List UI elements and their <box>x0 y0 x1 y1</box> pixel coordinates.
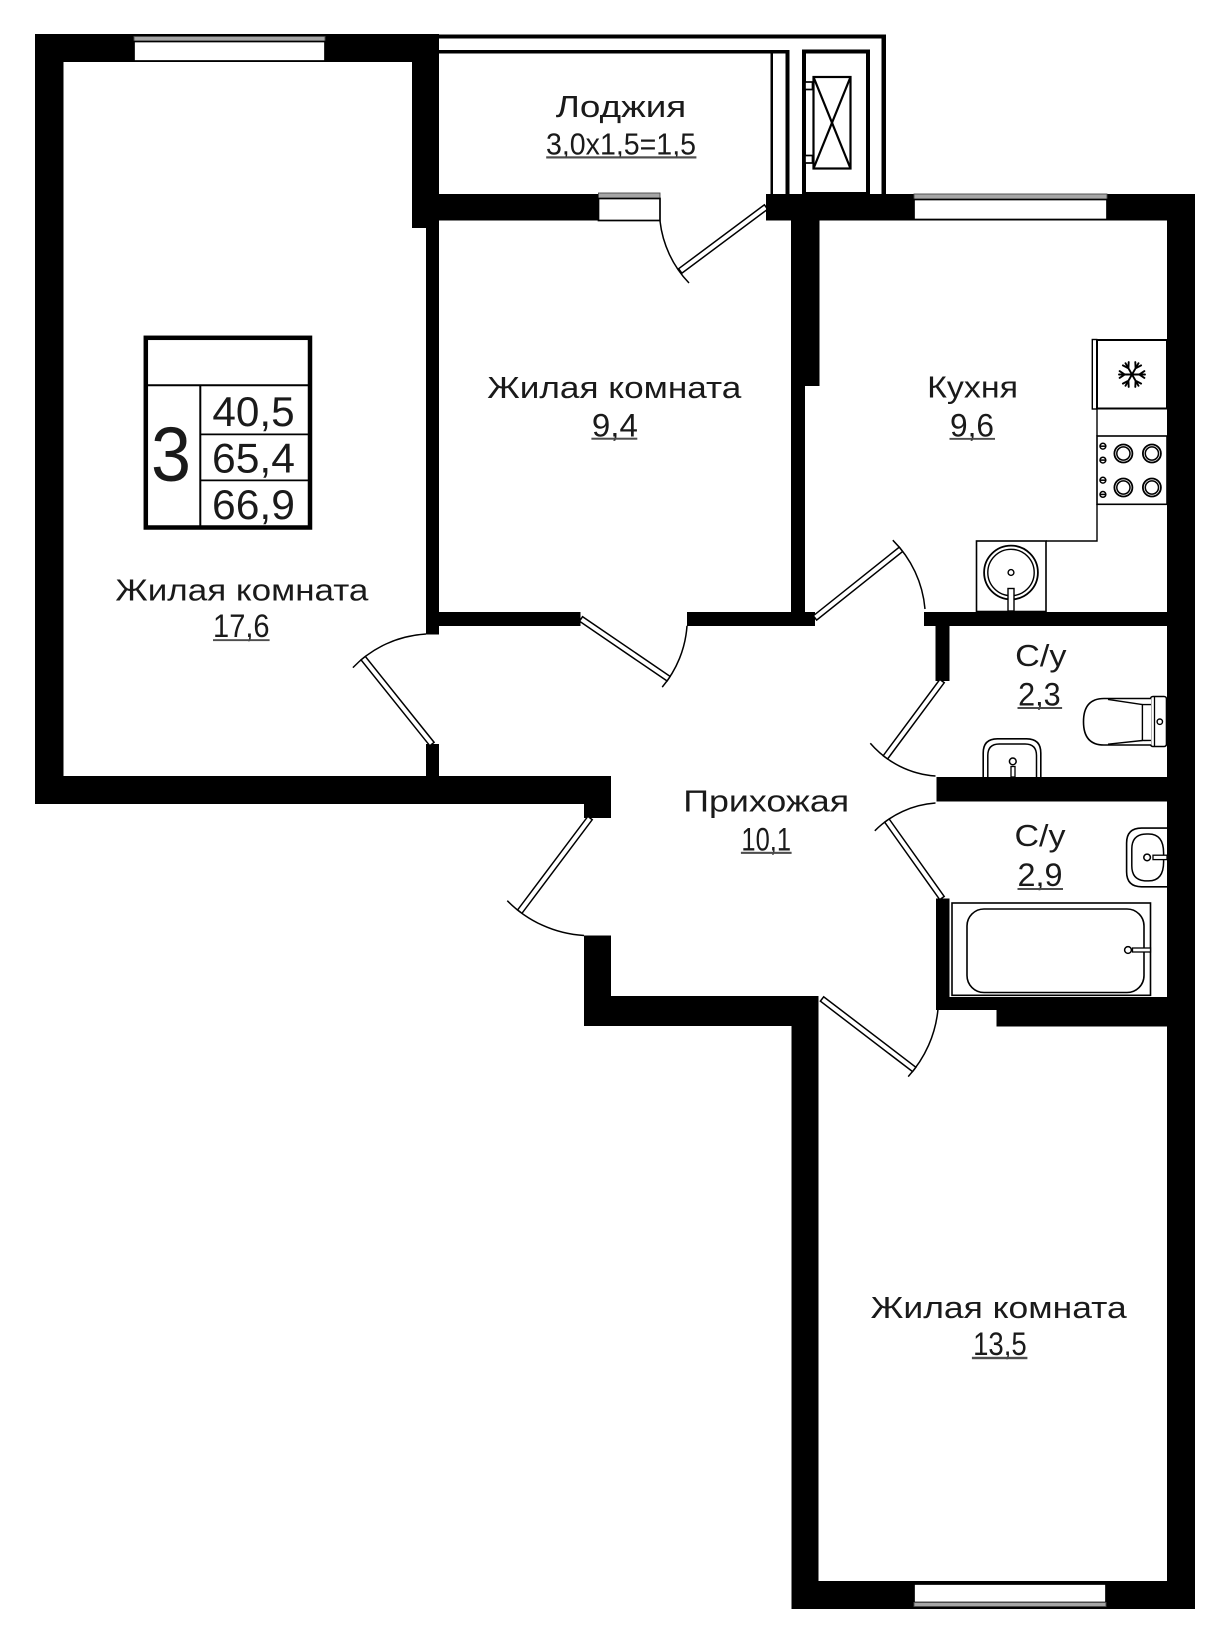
svg-text:Жилая комната: Жилая комната <box>871 1290 1128 1325</box>
svg-text:40,5: 40,5 <box>212 388 294 435</box>
svg-text:13,5: 13,5 <box>973 1326 1027 1362</box>
svg-text:Прихожая: Прихожая <box>683 784 849 819</box>
svg-text:Жилая комната: Жилая комната <box>115 573 369 608</box>
svg-text:2,9: 2,9 <box>1018 857 1063 893</box>
svg-text:3,0х1,5=1,5: 3,0х1,5=1,5 <box>546 127 696 162</box>
svg-text:66,9: 66,9 <box>212 481 295 528</box>
svg-text:Кухня: Кухня <box>927 370 1018 405</box>
svg-text:С/у: С/у <box>1015 638 1067 673</box>
svg-text:С/у: С/у <box>1015 818 1067 853</box>
svg-text:Лоджия: Лоджия <box>556 89 687 124</box>
svg-text:17,6: 17,6 <box>213 608 270 644</box>
svg-text:Жилая комната: Жилая комната <box>487 370 742 405</box>
svg-text:65,4: 65,4 <box>212 435 295 482</box>
svg-text:3: 3 <box>151 412 191 498</box>
